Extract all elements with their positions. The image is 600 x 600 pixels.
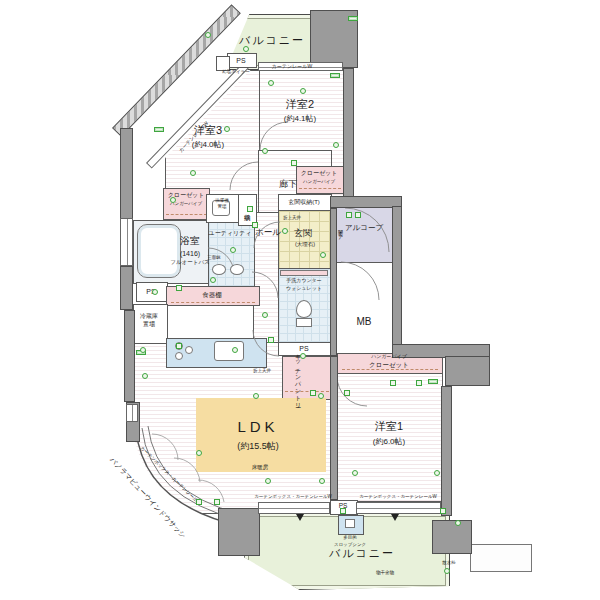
wall-left-mid: [120, 266, 133, 310]
switch-icon: [440, 508, 446, 514]
outlet-icon: [300, 353, 306, 359]
outlet-icon: [210, 277, 216, 283]
switch-icon: [252, 222, 258, 228]
kitchen-oriage-label: 折上天井: [253, 369, 271, 374]
floor-plan: バルコニー 給湯ボイラー PS カーテンレールW カーテンレールW 洋室2 (約…: [0, 0, 600, 600]
genkan-storage-label: 玄関収納(T): [288, 199, 320, 205]
ldk-size-label: (約15.5帖): [237, 442, 279, 451]
closet-y1-hanger: ハンガーパイプ: [371, 354, 407, 359]
genkan-door-label: 玄関ドア: [338, 226, 343, 237]
slop-sink-basin: [345, 519, 355, 528]
stove-burner-2: [185, 346, 193, 354]
slop-sink-label-1: 多目的: [343, 536, 357, 541]
bath-label: 浴室: [180, 236, 200, 246]
tv-outlet-icon: [390, 380, 396, 386]
alcove-label: アルコープ: [345, 224, 383, 232]
outlet-icon: [152, 289, 158, 295]
switch-icon: [196, 499, 202, 505]
closet-corridor-hanger: ハンガーパイプ: [303, 180, 335, 185]
balcony-bottom-label: バルコニー: [329, 548, 395, 559]
corridor-label: 廊下: [279, 180, 297, 189]
kitchen-sink: [214, 341, 244, 361]
vent-icon: [205, 32, 211, 38]
outlet-icon: [268, 80, 274, 86]
switch-icon: [355, 212, 361, 218]
wall-hall-column: [330, 208, 337, 356]
switch-icon: [346, 212, 352, 218]
slop-sink-label-2: スロップシンク: [334, 543, 366, 548]
outlet-icon: [318, 393, 324, 399]
toilet-bowl: [296, 300, 312, 318]
switch-icon: [340, 508, 346, 514]
switch-icon: [344, 390, 350, 396]
vanity-bowl-2: [230, 264, 244, 275]
outlet-icon: [232, 347, 238, 353]
switch-icon: [176, 285, 182, 291]
yoshitsu1-size: (約6.0帖): [373, 438, 405, 446]
genkan-sub-label: (大理石): [295, 242, 315, 248]
outlet-icon: [262, 148, 268, 154]
curtain-box-y1-label: カーテンボックス・カーテンレールW: [359, 495, 437, 500]
genkan-label: 玄関: [294, 229, 312, 238]
wall-left-top: [120, 128, 133, 220]
wall-left-lower: [124, 310, 135, 402]
ac-sleeve-icon: [330, 73, 340, 78]
outlet-icon: [190, 170, 196, 176]
tap-label: 散水栓: [442, 561, 456, 566]
switch-icon: [291, 160, 297, 166]
bathtub: [137, 224, 181, 278]
wall-right-alcove: [392, 206, 402, 352]
ldk-label: LDK: [237, 419, 278, 434]
floor-heating-label: 床暖房: [252, 465, 269, 471]
mb-label: MB: [357, 317, 372, 327]
yoshitsu2-size: (約4.1帖): [284, 115, 316, 123]
laundry-hook-label: 物干金物: [376, 571, 394, 576]
toilet-counter-label: 手洗カウンター: [286, 278, 321, 283]
utility-label: ユーティリティ: [209, 230, 252, 236]
laundry-hook-icon: [455, 520, 461, 526]
toilet-counter-strip: [280, 270, 328, 276]
switch-icon: [310, 390, 316, 396]
curtain-box-ldk-label: カーテンボックス・カーテンレールW: [254, 495, 332, 500]
outlet-icon: [434, 470, 440, 476]
yoshitsu2-label: 洋室2: [286, 99, 314, 110]
stove-burner-3: [175, 352, 183, 360]
ac-sleeve-icon: [428, 379, 438, 384]
outlet-icon: [253, 393, 259, 399]
outlet-icon: [224, 126, 230, 132]
bath-type-label: フルオートバス: [170, 260, 209, 266]
outlet-icon: [352, 470, 358, 476]
switch-icon: [247, 206, 253, 212]
closet-corridor-label: クローゼット: [301, 170, 338, 176]
wall-yoshitsu2-right: [343, 68, 354, 206]
outlet-icon: [320, 252, 326, 258]
window-ldk-left: [126, 404, 138, 422]
wall-yoshitsu1-right: [441, 386, 452, 516]
vanity-bowl: [212, 264, 226, 275]
outlet-icon: [282, 228, 288, 234]
pillar-bottom-left: [218, 508, 260, 556]
toilet-tank: [296, 318, 312, 327]
switch-icon: [214, 499, 220, 505]
outlet-icon: [196, 450, 202, 456]
dish-shelf-label: 食器棚: [202, 292, 222, 299]
hall-label: ホール: [255, 228, 281, 237]
pillar-bottom-right: [432, 520, 472, 554]
outlet-icon: [333, 142, 339, 148]
fridge-label-2: 置場: [143, 321, 155, 327]
yoshitsu3-label: 洋室3: [194, 125, 222, 136]
window-bath: [120, 218, 133, 266]
outlet-icon: [265, 478, 271, 484]
ac-sleeve-icon: [154, 127, 164, 132]
ac-sleeve-icon: [348, 16, 358, 21]
boiler-label: 給湯ボイラー: [222, 70, 249, 75]
fridge-label-1: 冷蔵庫: [140, 313, 158, 319]
laundry-label-1: 洗濯機: [215, 199, 229, 204]
wall-ldk-yoshitsu1: [330, 356, 338, 500]
tap-icon: [444, 568, 450, 574]
window-ldk-bottom: [258, 502, 330, 514]
yoshitsu1-label: 洋室1: [375, 421, 403, 432]
outlet-icon: [140, 347, 146, 353]
switch-icon: [268, 337, 274, 343]
balcony-top-label: バルコニー: [239, 35, 305, 46]
genkan-oriage-label: 折上天井: [283, 216, 301, 221]
closet-y1-label: クローゼット: [369, 362, 409, 369]
wall-right-block: [445, 356, 490, 386]
switch-icon: [176, 343, 182, 349]
outlet-icon: [300, 88, 306, 94]
ps-top-label: PS: [236, 57, 245, 64]
outlet-icon: [230, 247, 236, 253]
toilet-washlet-label: ウォシュレット: [286, 286, 322, 291]
bath-size-label: (1416): [180, 250, 200, 257]
outlet-icon: [319, 478, 325, 484]
outlet-icon: [142, 373, 148, 379]
laundry-label-2: 置場: [218, 205, 227, 210]
vent-icon: [243, 46, 249, 52]
tv-outlet-icon: [416, 380, 422, 386]
window-yoshitsu1-bottom: [356, 502, 441, 514]
yoshitsu3-size: (約4.0帖): [192, 141, 224, 149]
outlet-icon: [262, 312, 268, 318]
curtain-rail-y2-label: カーテンレールW: [272, 64, 312, 69]
outlet-icon: [170, 197, 176, 203]
